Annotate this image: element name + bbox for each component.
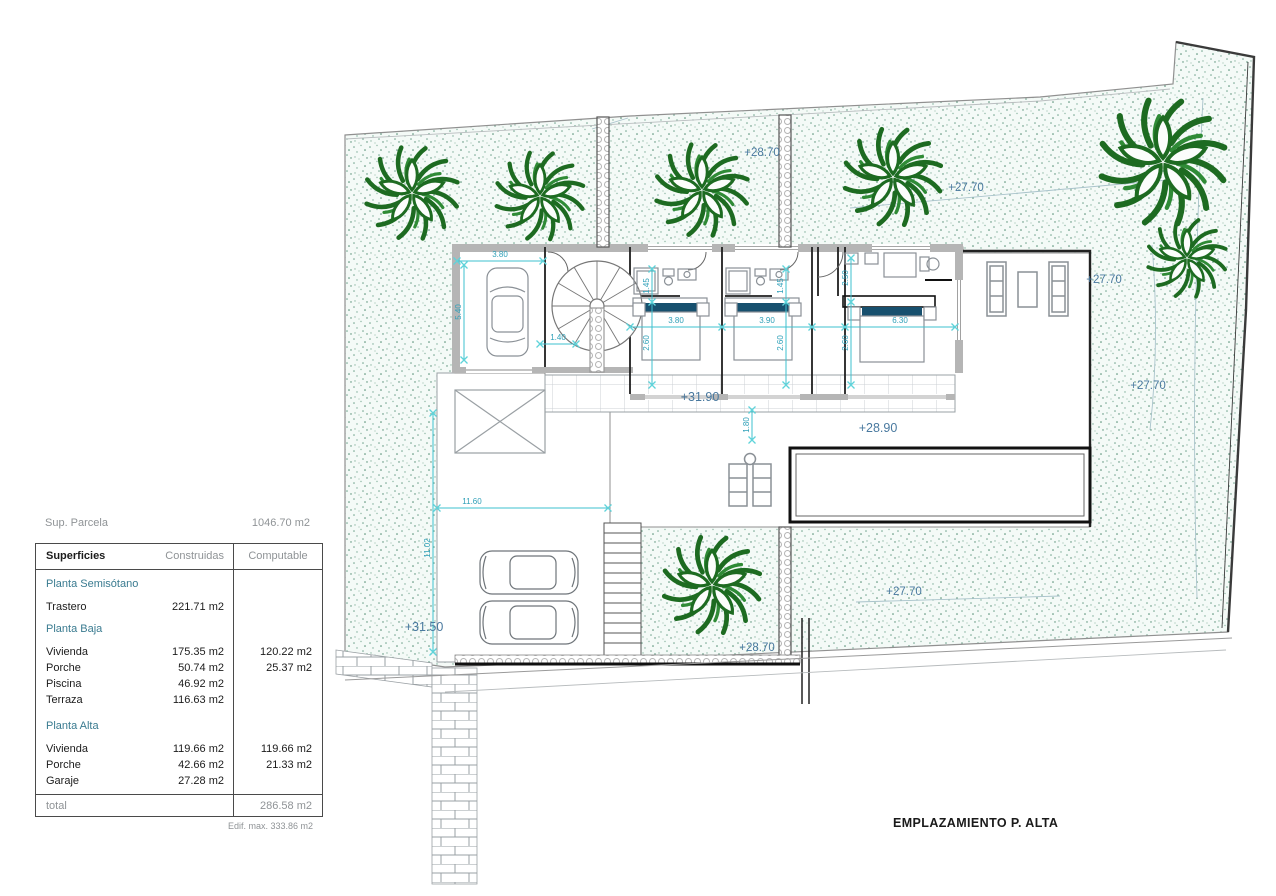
garden-wall-2 (779, 115, 791, 247)
dimension-label: 2.60 (776, 335, 785, 351)
dimension-label: 2.50 (841, 270, 850, 286)
site-plan-sheet: 3.80 5.40 1.40 3.80 3.90 6.30 1.45 2.60 … (0, 0, 1276, 896)
table-row: Vivienda175.35 m2120.22 m2 (46, 646, 312, 660)
table-row: Trastero221.71 m2 (46, 601, 312, 615)
table-section-row: Planta Semisótano (46, 578, 312, 592)
table-row: Porche50.74 m225.37 m2 (46, 662, 312, 676)
deck-tiles (545, 375, 955, 412)
garden-wall-3 (779, 527, 791, 660)
dimension-label: 11.02 (423, 538, 432, 558)
table-section-row: Planta Baja (46, 623, 312, 637)
elevation-label: +27.70 (948, 182, 984, 194)
dimension-label: 1.45 (642, 278, 651, 294)
dimension-label: 2.60 (841, 335, 850, 351)
table-row: Porche42.66 m221.33 m2 (46, 759, 312, 773)
dimension-label: 3.80 (668, 316, 684, 325)
table-section-row: Planta Alta (46, 720, 312, 734)
dimension-label: 1.40 (550, 333, 566, 342)
elevation-label: +27.70 (1130, 380, 1166, 392)
col-construidas: Construidas (124, 550, 224, 562)
dimension-label: 11.60 (462, 497, 482, 506)
dimension-label: 3.80 (492, 250, 508, 259)
elevation-label: +28.70 (739, 642, 775, 654)
edificability-note: Edif. max. 333.86 m2 (35, 821, 313, 831)
elevation-label: +27.70 (1086, 274, 1122, 286)
pool (790, 448, 1090, 522)
elevation-label: +31.50 (405, 620, 444, 634)
dimension-label: 6.30 (892, 316, 908, 325)
dimension-label: 3.90 (759, 316, 775, 325)
parcel-summary-value: 1046.70 m2 (252, 517, 310, 529)
dimension-label: 1.45 (776, 278, 785, 294)
table-row: Garaje27.28 m2 (46, 775, 312, 789)
surfaces-table: Superficies Construidas Computable Plant… (35, 543, 323, 817)
garden-wall-1 (597, 117, 609, 247)
elevation-label: +31.90 (681, 390, 720, 404)
table-footer-divider (36, 794, 322, 795)
col-superficies: Superficies (46, 550, 105, 562)
exterior-stairs (604, 523, 641, 657)
parcel-summary-label: Sup. Parcela (45, 517, 108, 529)
total-value: 286.58 m2 (228, 800, 312, 812)
table-row: Piscina46.92 m2 (46, 678, 312, 692)
table-row: Terraza116.63 m2 (46, 694, 312, 708)
dimension-label: 2.60 (642, 335, 651, 351)
elevation-label: +28.70 (744, 147, 780, 159)
table-row: Vivienda119.66 m2119.66 m2 (46, 743, 312, 757)
table-header: Superficies Construidas Computable (36, 544, 322, 570)
elevation-label: +28.90 (859, 421, 898, 435)
total-label: total (46, 800, 67, 812)
brick-path (432, 668, 477, 884)
dimension-label: 5.40 (454, 304, 463, 320)
hall-south-wall (545, 367, 633, 373)
elevation-label: +27.70 (886, 586, 922, 598)
parcel-summary: Sup. Parcela 1046.70 m2 (45, 517, 320, 529)
col-computable: Computable (239, 550, 317, 562)
dimension-label: 1.80 (742, 417, 751, 433)
driveway-courtyard (437, 373, 630, 662)
plan-title: EMPLAZAMIENTO P. ALTA (893, 816, 1113, 830)
driveway-edge-band (455, 655, 800, 663)
